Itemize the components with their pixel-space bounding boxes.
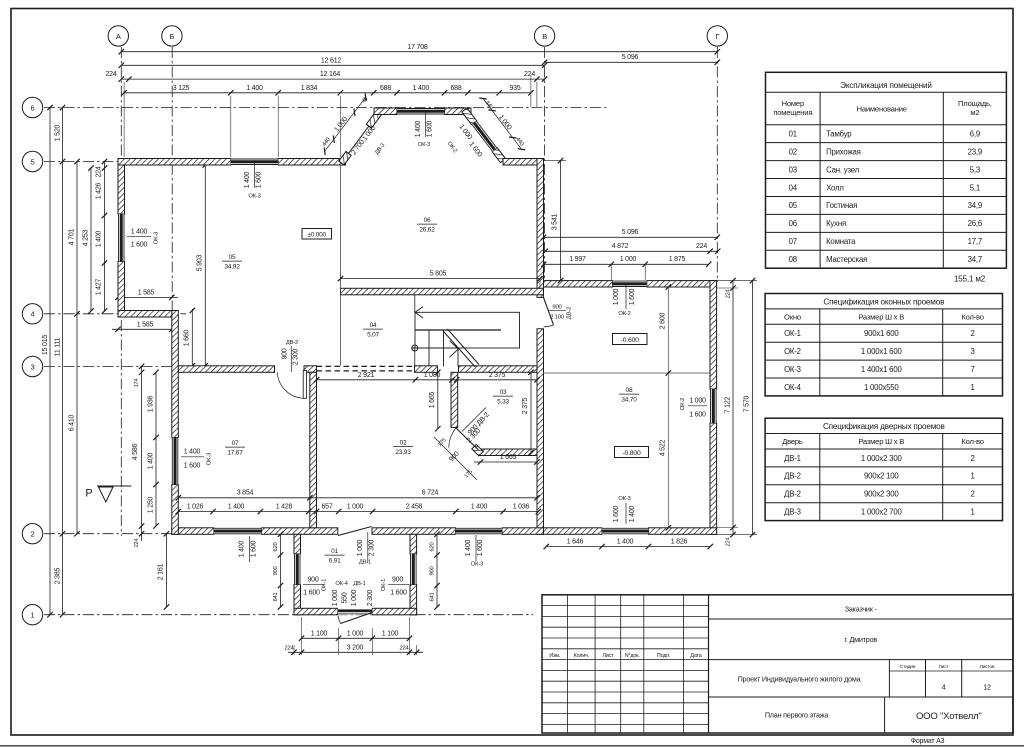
svg-text:1 585: 1 585 [138, 290, 155, 297]
svg-text:08: 08 [789, 255, 797, 264]
svg-text:3 854: 3 854 [237, 490, 254, 497]
svg-text:ОК-4: ОК-4 [335, 581, 348, 587]
svg-text:ОК-1: ОК-1 [784, 329, 801, 338]
svg-text:1 400: 1 400 [239, 540, 246, 557]
svg-text:1 400: 1 400 [96, 230, 103, 247]
svg-text:900х1 600: 900х1 600 [864, 329, 899, 338]
svg-text:ОК-1: ОК-1 [322, 579, 328, 591]
svg-text:657: 657 [321, 503, 332, 510]
svg-text:1 600: 1 600 [629, 288, 636, 305]
svg-text:900х2 100: 900х2 100 [864, 472, 899, 481]
svg-text:2 600: 2 600 [660, 312, 667, 329]
svg-text:1 026: 1 026 [187, 503, 204, 510]
svg-text:1 000: 1 000 [620, 256, 637, 263]
svg-text:1 600: 1 600 [390, 590, 407, 597]
svg-text:6: 6 [31, 103, 35, 112]
svg-text:5,1: 5,1 [970, 183, 980, 192]
svg-text:Размер Ш х В: Размер Ш х В [858, 437, 904, 446]
svg-text:1 000х550: 1 000х550 [864, 383, 899, 392]
svg-text:Экспликация помещений: Экспликация помещений [840, 81, 932, 90]
svg-text:1 875: 1 875 [669, 256, 686, 263]
svg-text:1 428: 1 428 [276, 503, 293, 510]
svg-text:3 125: 3 125 [173, 85, 190, 92]
svg-text:1 600: 1 600 [427, 120, 434, 137]
svg-text:34,92: 34,92 [224, 263, 240, 270]
svg-text:5: 5 [31, 157, 35, 166]
svg-text:900: 900 [307, 577, 318, 584]
svg-text:1: 1 [31, 611, 35, 620]
svg-text:1: 1 [971, 507, 975, 516]
svg-text:1 400: 1 400 [465, 539, 472, 556]
svg-text:23,9: 23,9 [968, 147, 982, 156]
svg-text:ОК-2: ОК-2 [618, 311, 630, 317]
svg-text:5 096: 5 096 [622, 229, 639, 236]
svg-text:1 660: 1 660 [184, 329, 191, 346]
svg-text:224: 224 [134, 539, 140, 548]
svg-text:1 000: 1 000 [357, 539, 364, 556]
svg-text:3: 3 [971, 347, 975, 356]
svg-text:1 826: 1 826 [671, 539, 688, 546]
svg-text:ДВ-3: ДВ-3 [784, 507, 801, 516]
svg-text:1 100: 1 100 [382, 630, 399, 637]
svg-text:224: 224 [726, 290, 732, 299]
svg-text:1 997: 1 997 [569, 256, 586, 263]
svg-text:06: 06 [789, 219, 797, 228]
svg-text:Р: Р [85, 488, 92, 500]
svg-text:1 400: 1 400 [415, 120, 422, 137]
svg-text:Стадия: Стадия [900, 664, 916, 670]
svg-text:1 000х2 300: 1 000х2 300 [861, 454, 903, 463]
svg-text:Кол-во: Кол-во [961, 437, 983, 446]
svg-text:2 458: 2 458 [406, 503, 423, 510]
svg-text:1 600: 1 600 [689, 412, 706, 419]
svg-text:3 200: 3 200 [347, 644, 364, 651]
svg-text:17,67: 17,67 [227, 449, 243, 456]
svg-text:Формат А3: Формат А3 [911, 738, 945, 745]
svg-text:6,91: 6,91 [329, 557, 341, 564]
svg-text:224: 224 [105, 71, 116, 78]
svg-text:-0.600: -0.600 [621, 337, 639, 344]
svg-text:1 000: 1 000 [613, 288, 620, 305]
svg-text:641: 641 [430, 592, 436, 601]
svg-text:15 015: 15 015 [42, 335, 49, 356]
svg-text:4: 4 [31, 310, 35, 319]
svg-text:1 600: 1 600 [131, 242, 148, 249]
svg-text:1 400: 1 400 [471, 503, 488, 510]
svg-text:03: 03 [500, 389, 507, 396]
svg-text:688: 688 [450, 85, 461, 92]
svg-text:1 426: 1 426 [96, 182, 103, 199]
svg-text:ОК-3: ОК-3 [154, 232, 160, 244]
svg-text:05: 05 [229, 254, 236, 261]
svg-text:Лист: Лист [939, 664, 950, 670]
svg-text:1 000: 1 000 [347, 503, 364, 510]
svg-text:2 385: 2 385 [55, 567, 62, 584]
svg-text:1 400: 1 400 [228, 503, 245, 510]
svg-text:ДВ-2: ДВ-2 [784, 490, 801, 499]
svg-text:174: 174 [134, 379, 140, 388]
svg-text:Окно: Окно [784, 312, 801, 321]
svg-text:ДВ-2: ДВ-2 [286, 340, 298, 346]
svg-text:Комната: Комната [826, 237, 856, 246]
svg-text:900: 900 [273, 566, 279, 575]
svg-text:900: 900 [430, 566, 436, 575]
svg-text:Мастерская: Мастерская [826, 255, 867, 264]
svg-text:224: 224 [96, 166, 103, 177]
svg-text:1 400: 1 400 [629, 505, 636, 522]
svg-text:Кол-во: Кол-во [961, 312, 983, 321]
svg-text:07: 07 [232, 440, 239, 447]
svg-text:7 570: 7 570 [744, 395, 751, 412]
svg-text:ДВ-2: ДВ-2 [784, 472, 801, 481]
svg-text:ООО "Хотвелл": ООО "Хотвелл" [916, 711, 982, 722]
svg-text:2: 2 [971, 454, 975, 463]
svg-text:1 400: 1 400 [131, 229, 148, 236]
svg-text:1: 1 [971, 383, 975, 392]
svg-text:Спецификация дверных проемов: Спецификация дверных проемов [823, 422, 945, 431]
svg-text:Кухня: Кухня [826, 219, 846, 228]
svg-text:2 161: 2 161 [158, 563, 165, 580]
svg-text:1 000: 1 000 [332, 589, 339, 606]
svg-text:34,9: 34,9 [968, 201, 982, 210]
svg-text:ОК-4: ОК-4 [784, 383, 802, 392]
svg-text:5 903: 5 903 [197, 254, 204, 271]
svg-text:7 122: 7 122 [725, 396, 732, 413]
svg-text:1 000х1 600: 1 000х1 600 [861, 347, 903, 356]
svg-text:помещения: помещения [773, 108, 812, 117]
svg-text:224: 224 [399, 645, 409, 651]
svg-text:04: 04 [789, 183, 798, 192]
svg-text:Заказчик -: Заказчик - [845, 605, 878, 614]
svg-text:34,70: 34,70 [621, 396, 637, 403]
svg-text:Размер Ш х В: Размер Ш х В [858, 312, 904, 321]
svg-text:1 400: 1 400 [413, 85, 430, 92]
svg-text:2 921: 2 921 [358, 372, 375, 379]
svg-text:2 375: 2 375 [489, 372, 506, 379]
svg-text:02: 02 [400, 440, 407, 447]
svg-text:3 541: 3 541 [552, 213, 559, 230]
svg-text:5,33: 5,33 [497, 398, 509, 405]
svg-text:1 600: 1 600 [613, 505, 620, 522]
svg-text:Лист: Лист [602, 653, 614, 659]
svg-text:4 253: 4 253 [83, 229, 90, 246]
svg-text:ОК-3: ОК-3 [618, 496, 630, 502]
svg-text:±0.000: ±0.000 [308, 232, 327, 239]
svg-text:04: 04 [370, 322, 377, 329]
svg-text:1 100: 1 100 [311, 630, 328, 637]
svg-text:В: В [542, 32, 547, 41]
svg-text:23,93: 23,93 [395, 449, 411, 456]
svg-text:Дата: Дата [690, 653, 701, 659]
svg-text:2 300: 2 300 [369, 539, 376, 556]
svg-text:12 164: 12 164 [320, 71, 341, 78]
svg-text:26,6: 26,6 [968, 219, 982, 228]
svg-text:01: 01 [789, 129, 797, 138]
svg-text:Гостиная: Гостиная [826, 201, 857, 210]
svg-text:1 834: 1 834 [301, 85, 318, 92]
svg-text:2 375: 2 375 [522, 397, 529, 414]
svg-text:Сан. узел: Сан. узел [826, 165, 860, 174]
svg-text:Колич.: Колич. [574, 653, 589, 659]
svg-text:План первого этажа: План первого этажа [765, 711, 829, 720]
svg-text:Изм.: Изм. [549, 653, 560, 659]
svg-text:1 936: 1 936 [148, 395, 155, 412]
svg-text:2: 2 [31, 530, 35, 539]
svg-text:1 600: 1 600 [477, 539, 484, 556]
svg-text:26,62: 26,62 [419, 226, 435, 233]
svg-text:2 300: 2 300 [367, 589, 374, 606]
svg-text:-0.800: -0.800 [622, 450, 640, 457]
svg-text:ДВ-1: ДВ-1 [359, 560, 371, 566]
svg-text:1 400: 1 400 [184, 449, 201, 456]
svg-text:ОК-3: ОК-3 [248, 194, 260, 200]
svg-text:1 427: 1 427 [96, 278, 103, 295]
svg-text:5 805: 5 805 [430, 270, 447, 277]
svg-text:1 600: 1 600 [256, 171, 263, 188]
svg-text:1: 1 [971, 472, 975, 481]
svg-text:12 612: 12 612 [321, 57, 342, 64]
svg-text:Тамбур: Тамбур [826, 129, 852, 138]
svg-text:1 400: 1 400 [244, 171, 251, 188]
svg-text:2 100: 2 100 [550, 315, 565, 321]
svg-text:1 250: 1 250 [148, 496, 155, 513]
svg-text:ОК-3: ОК-3 [471, 562, 483, 568]
svg-text:17 708: 17 708 [407, 44, 428, 51]
svg-text:550: 550 [342, 592, 349, 603]
svg-text:1 000: 1 000 [689, 398, 706, 405]
svg-text:224: 224 [284, 645, 294, 651]
svg-text:Листов: Листов [980, 664, 995, 670]
svg-text:г. Дмитров: г. Дмитров [844, 635, 877, 644]
svg-text:05: 05 [789, 201, 798, 210]
svg-text:5,3: 5,3 [970, 165, 980, 174]
svg-text:ОК-3: ОК-3 [784, 365, 801, 374]
svg-text:4 701: 4 701 [69, 228, 76, 245]
svg-text:1 000х2 700: 1 000х2 700 [861, 507, 903, 516]
svg-text:ДВ-1: ДВ-1 [353, 581, 365, 587]
svg-text:02: 02 [789, 147, 797, 156]
svg-text:935: 935 [509, 85, 520, 92]
svg-text:1 646: 1 646 [567, 539, 584, 546]
svg-text:620: 620 [430, 542, 436, 551]
svg-text:1 600: 1 600 [184, 463, 201, 470]
svg-text:1 000: 1 000 [351, 589, 358, 606]
svg-text:ОК-3: ОК-3 [418, 142, 430, 148]
svg-text:1 665: 1 665 [500, 454, 517, 461]
svg-text:224: 224 [524, 71, 535, 78]
svg-text:ДВ-2: ДВ-2 [567, 307, 573, 319]
svg-text:900х2 300: 900х2 300 [864, 490, 899, 499]
svg-text:2: 2 [971, 329, 975, 338]
svg-text:1 520: 1 520 [55, 124, 62, 141]
svg-text:Дверь: Дверь [782, 437, 803, 446]
svg-text:6 724: 6 724 [422, 490, 439, 497]
svg-text:06: 06 [424, 217, 431, 224]
svg-text:Прихожая: Прихожая [826, 147, 861, 156]
svg-text:1 600: 1 600 [251, 540, 258, 557]
svg-text:ОК-2: ОК-2 [680, 398, 686, 410]
svg-text:1 400: 1 400 [148, 452, 155, 469]
svg-text:4 586: 4 586 [132, 443, 139, 460]
svg-text:08: 08 [626, 387, 633, 394]
svg-text:688: 688 [380, 85, 391, 92]
svg-text:4 872: 4 872 [612, 243, 629, 250]
svg-text:7: 7 [971, 365, 975, 374]
svg-text:12: 12 [983, 683, 991, 692]
svg-text:6 410: 6 410 [69, 414, 76, 431]
svg-text:224: 224 [726, 538, 732, 547]
svg-text:1 600: 1 600 [303, 590, 320, 597]
svg-text:17,7: 17,7 [968, 237, 982, 246]
svg-text:900: 900 [282, 348, 289, 359]
svg-text:2 300: 2 300 [293, 348, 300, 365]
svg-text:1 000: 1 000 [347, 630, 364, 637]
svg-text:А: А [116, 32, 121, 41]
svg-text:1 400: 1 400 [246, 85, 263, 92]
svg-text:5,07: 5,07 [367, 331, 379, 338]
svg-text:Номер: Номер [782, 99, 804, 108]
svg-text:4 522: 4 522 [660, 439, 667, 456]
svg-text:4: 4 [942, 683, 946, 692]
svg-text:03: 03 [789, 165, 797, 174]
svg-text:Наименование: Наименование [857, 104, 907, 113]
svg-text:900: 900 [552, 305, 562, 311]
svg-text:Г: Г [715, 32, 719, 41]
svg-text:224: 224 [696, 243, 707, 250]
svg-text:11 111: 11 111 [55, 337, 62, 356]
svg-text:6,9: 6,9 [970, 129, 980, 138]
svg-text:ОК-2: ОК-2 [784, 347, 801, 356]
svg-text:155,1 м2: 155,1 м2 [954, 275, 986, 284]
svg-text:Б: Б [170, 32, 175, 41]
svg-text:1 400: 1 400 [617, 539, 634, 546]
svg-text:1 036: 1 036 [513, 503, 530, 510]
svg-text:Проект Индивидуального жилого: Проект Индивидуального жилого дома [738, 675, 861, 684]
svg-text:1 585: 1 585 [137, 321, 154, 328]
svg-text:5 096: 5 096 [622, 54, 639, 61]
svg-text:ОК-3: ОК-3 [207, 453, 213, 465]
svg-text:2: 2 [971, 490, 975, 499]
svg-text:01: 01 [331, 548, 338, 555]
svg-text:Спецификация оконных проемов: Спецификация оконных проемов [823, 297, 944, 306]
svg-text:1 400х1 600: 1 400х1 600 [861, 365, 903, 374]
svg-text:м2: м2 [970, 108, 979, 117]
svg-text:Площадь,: Площадь, [958, 99, 992, 108]
svg-text:34,7: 34,7 [968, 255, 982, 264]
svg-text:Подп.: Подп. [657, 653, 670, 659]
svg-text:Холл: Холл [826, 183, 844, 192]
svg-text:3: 3 [31, 362, 35, 371]
svg-text:ДВ-1: ДВ-1 [784, 454, 801, 463]
svg-text:900: 900 [392, 577, 403, 584]
svg-text:N°док.: N°док. [625, 653, 640, 659]
svg-text:641: 641 [273, 592, 279, 601]
svg-text:620: 620 [273, 542, 279, 551]
svg-text:1 665: 1 665 [429, 391, 436, 408]
svg-text:ОК-1: ОК-1 [381, 579, 387, 591]
svg-text:07: 07 [789, 237, 797, 246]
